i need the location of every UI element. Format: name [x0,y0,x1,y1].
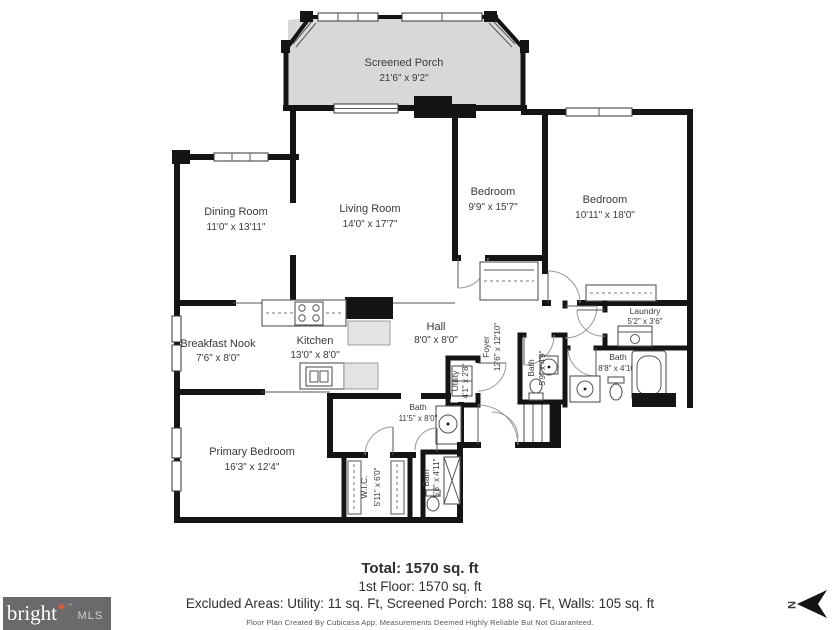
shower-bath-toilet [427,497,439,511]
room-label-bedroom2: Bedroom [583,194,628,206]
bath-laundry-wing: Bath 5'9" x 4'9" Laundry 5'2" x 3'6" Bat… [520,303,690,407]
room-dims-hall: 8'0" x 8'0" [414,335,458,346]
screened-porch: Screened Porch 21'6" x 9'2" [281,11,529,118]
room-dims-bedroom2: 10'11" x 18'0" [575,210,635,221]
entry-door-arc [478,405,518,445]
room-dims-bedroom1: 9'9" x 15'7" [468,202,518,213]
bright-mls-logo: bright ✱ ™ MLS [3,597,111,630]
excluded-areas: Excluded Areas: Utility: 11 sq. Ft, Scre… [0,596,840,613]
room-label-bath-hall: Bath [609,352,627,362]
north-indicator: N [770,585,835,623]
room-dims-wic: 5'11" x 6'0" [373,467,382,506]
kitchen-counter-bottom-right [344,363,378,389]
room-dims-living: 14'0" x 17'7" [343,219,398,230]
primary-suite: Bath 11'5" x 8'0" Primary Bedroom 16'3" … [177,396,461,520]
room-label-foyer: Foyer [481,336,491,358]
bedroom2-door-arc [548,271,580,303]
logo-star-icon: ✱ [58,602,66,613]
floor-plan-drawing: Screened Porch 21'6" x 9'2" Dining Room … [0,0,840,630]
area-summary: Total: 1570 sq. ft 1st Floor: 1570 sq. f… [0,560,840,627]
primary-window [172,461,181,491]
porch-window [318,13,378,21]
hall-bath-toilet [610,384,622,400]
room-label-laundry: Laundry [630,306,661,316]
disclaimer: Floor Plan Created By Cubicasa App. Meas… [0,618,840,627]
total-area: Total: 1570 sq. ft [0,560,840,579]
room-label-bath-foyer: Bath [526,359,536,377]
dining-window [214,153,268,161]
north-label: N [785,601,797,609]
logo-trademark: ™ [68,603,73,609]
room-label-kitchen: Kitchen [297,335,334,347]
room-label-bath-shower: Bath [421,469,431,487]
logo-mls-label: MLS [78,610,104,622]
room-dims-nook: 7'6" x 8'0" [196,353,240,364]
room-label-hall: Hall [427,321,446,333]
room-dims-foyer: 12'6" x 12'10" [493,323,502,371]
room-label-dining: Dining Room [204,206,268,218]
floor-plan-page: Screened Porch 21'6" x 9'2" Dining Room … [0,0,840,630]
hall-bath-toilet-tank [608,377,624,383]
room-label-primary: Primary Bedroom [209,446,295,458]
room-dims-utility: 4'1" x 2'8" [461,363,470,398]
room-dims-primary: 16'3" x 12'4" [225,462,280,473]
room-dims-laundry: 5'2" x 3'6" [628,317,663,326]
primary-window [172,428,181,458]
foyer-bath-toilet-tank [529,393,543,400]
kitchen-counter-right [348,321,390,345]
entry-closet [524,402,550,443]
room-dims-dining: 11'0" x 13'11" [207,222,266,233]
stove [295,302,323,325]
chimney-block [414,96,452,118]
room-label-porch: Screened Porch [365,57,444,69]
room-dims-bath-primary: 11'5" x 8'0" [399,414,438,423]
shower-bath-door-arc [415,428,437,450]
room-label-living: Living Room [339,203,400,215]
room-label-bedroom1: Bedroom [471,186,516,198]
room-label-bath-primary: Bath [409,402,427,412]
room-dims-kitchen: 13'0" x 8'0" [290,350,340,361]
room-label-wic: W.I.C. [359,475,369,498]
room-label-nook: Breakfast Nook [180,338,256,350]
logo-wordmark: bright [7,603,57,624]
first-floor-area: 1st Floor: 1570 sq. ft [0,579,840,596]
room-dims-bath-foyer: 5'9" x 4'9" [538,350,547,385]
room-label-utility: Utility [450,370,460,392]
room-dims-porch: 21'6" x 9'2" [379,73,429,84]
entry-door-arc2 [492,412,518,438]
vestibule-door-arc [565,306,597,338]
north-arrow-icon [797,590,827,618]
room-dims-bath-shower: 5'8" x 4'11" [432,458,441,497]
bath-primary-door-arc [365,427,393,455]
laundry-door-arc [577,310,605,336]
hall-bath-door-arc [568,348,596,376]
